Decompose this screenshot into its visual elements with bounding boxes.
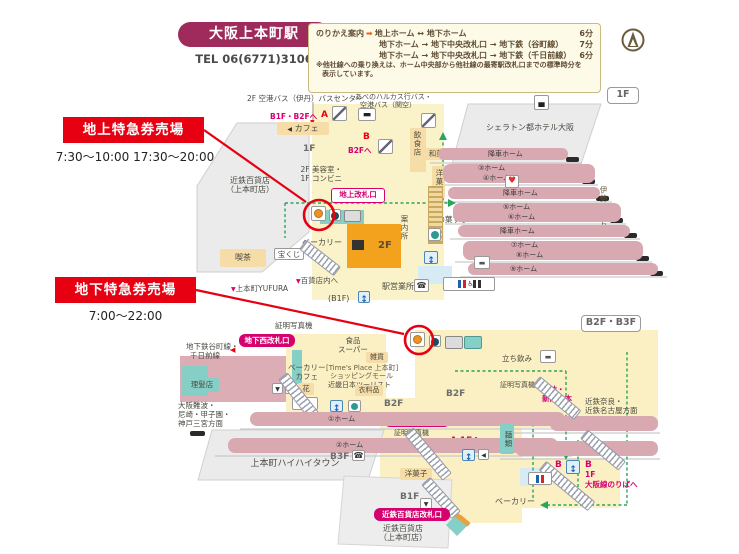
restaurant-label: 飲食店 [412, 131, 423, 157]
express-ticket-office-icon [311, 206, 326, 221]
transfer-route-1: 地上ホーム ↔ 地下ホーム [375, 28, 573, 39]
elevator-icon [330, 400, 343, 412]
elevator-icon [358, 291, 370, 303]
transfer-info-box: のりかえ案内 ➡ 地上ホーム ↔ 地下ホーム 6分 地下ホーム → 地下中央改札… [308, 23, 601, 93]
b1f-text: B1F [400, 492, 419, 502]
transfer-note-line1: ※他社線への乗り換えは、ホーム中央部から他社線の最寄駅改札口までの標準時分を [316, 61, 593, 70]
platform-3-4-bar: ③ホーム ④ホーム [443, 164, 595, 183]
dept-store-label: 近鉄百貨店 （上本町店） [210, 176, 290, 195]
express-ticket-office-icon [410, 332, 425, 347]
harukas-bus-label-1: あべのハルカス行バス・ [355, 93, 432, 101]
bakery-cafe-label: ベーカリー カフェ [288, 364, 326, 382]
underground-west-gate-label: 地下西改札口 [239, 334, 295, 347]
zakka-shop-label: 雑貨 [366, 352, 388, 363]
clothing-shop-label: 衣料品 [355, 385, 383, 396]
ground-express-ticket-hours: 7:30～10:00 17:30～20:00 [40, 148, 230, 165]
ground-express-ticket-label: 地上特急券売場 [63, 117, 204, 143]
bus-icon [358, 108, 376, 121]
ticket-machine-icon [429, 335, 441, 347]
nara-platform-bar-1 [550, 416, 658, 431]
elevator-icon [424, 251, 438, 264]
photo-booth-label-3: 証明写真機 [500, 381, 535, 389]
platform-7-8-bar: ⑦ホーム ⑧ホーム [463, 241, 643, 260]
ticket-counter-icon [344, 210, 361, 222]
dept-store-label-b1f: 近鉄百貨店 （上本町店） [368, 524, 438, 543]
smoking-area-icon [474, 256, 490, 269]
b2f-text-right: B2F [446, 389, 465, 399]
transfer-time-1: 6分 [573, 28, 593, 39]
restroom-icons [528, 472, 552, 485]
exit-b-label-2: B [585, 460, 592, 470]
to-b2f-label: B2Fへ [348, 145, 372, 156]
floor-1f-text: 1F [303, 144, 315, 154]
platform-5-6-bar: ⑤ホーム ⑥ホーム [453, 203, 621, 222]
alight-platform-bar-3: 降車ホーム [458, 225, 630, 237]
to-b1f-b2f-label: B1F・B2Fへ [270, 111, 317, 122]
info-office-label: 案内所 [399, 215, 410, 241]
to-dept-store-label: ▼百貨店内へ [296, 277, 338, 286]
transfer-time-2: 7分 [573, 39, 593, 50]
floor-badge-1f: 1F [607, 87, 639, 104]
arrow-icon: ➡ [364, 28, 375, 39]
escalator-icon [421, 113, 436, 128]
underground-express-ticket-hours: 7:00～22:00 [55, 307, 196, 324]
exit-b-label: B [363, 132, 370, 142]
bus-center-label: 2F 空港バス（伊丹）バスセンター [247, 95, 363, 104]
exit-a-label: A [321, 110, 328, 120]
transfer-route-2: 地下ホーム → 地下中央改札口 → 地下鉄（谷町線） [379, 39, 573, 50]
sheraton-hotel-label: シェラトン都ホテル大阪 [486, 123, 574, 132]
phone-icon [414, 279, 429, 292]
nara-direction-2: 近鉄名古屋方面 [585, 407, 638, 416]
restroom-icons: ♿ [443, 277, 495, 291]
phone-booth-icon [478, 449, 489, 460]
ground-ticket-gate-label: 地上改札口 [331, 188, 385, 203]
bakery-label-b2f: ベーカリー [495, 497, 535, 506]
beauty-conv-label: 2F 美容室・ 1F コンビニ [300, 166, 342, 184]
platform-9-bar: ⑨ホーム [468, 263, 658, 275]
charge-machine-icon [464, 336, 482, 349]
transfer-note-line2: 表示しています。 [316, 70, 593, 79]
namba-direction-3: 神戸三宮方面 [178, 420, 223, 429]
alight-platform-bar-2: 降車ホーム [448, 187, 600, 199]
ticket-machine-icon [329, 209, 341, 221]
to-osaka-line-label-2: 大阪線のりばへ [585, 479, 638, 490]
station-map-page: 大阪上本町駅 TEL 06(6771)3106 のりかえ案内 ➡ 地上ホーム ↔… [0, 0, 739, 554]
b1f-note-label: (B1F) [328, 294, 349, 303]
aed-icon [505, 175, 519, 188]
transfer-time-3: 6分 [573, 50, 593, 61]
station-office-label: 駅営業所 [382, 282, 414, 291]
kissa-label: 喫茶 [220, 249, 266, 267]
2f-block-label: 2F [378, 240, 392, 251]
to-osaka-line-label-1: 1F [585, 470, 595, 479]
alight-platform-bar-1: 降車ホーム [438, 148, 568, 160]
recycle-icon [348, 400, 361, 412]
dept-store-gate-label: 近鉄百貨店改札口 [374, 508, 450, 521]
smoking-area-icon [540, 350, 556, 363]
transfer-route-3: 地下ホーム → 地下中央改札口 → 地下鉄（千日前線） [379, 50, 573, 61]
platform-1-bar: ①ホーム [250, 412, 565, 426]
ticket-counter-icon [445, 336, 463, 349]
yufura-label: ▼上本町YUFURA [231, 285, 288, 294]
b2f-text-left: B2F [384, 399, 403, 409]
food-market-label: 食品 スーパー [338, 337, 368, 355]
floor-badge-b2f-b3f: B2F・B3F [581, 315, 641, 332]
elevator-icon [566, 460, 580, 474]
escalator-icon [332, 106, 347, 121]
transfer-title: のりかえ案内 [316, 28, 364, 39]
cafe-label: ◀ カフェ [277, 122, 329, 135]
times-place-label-2: ショッピングモール [330, 372, 393, 380]
standing-bar-label: 立ち飲み [502, 355, 532, 364]
haihai-town-label: 上本町ハイハイタウン [230, 456, 360, 469]
recycle-icon [428, 228, 441, 241]
barber-label: 理髪店 [185, 378, 219, 392]
subway-line-label-2: 千日前線 [190, 352, 220, 361]
escalator-icon [378, 139, 393, 154]
underground-express-ticket-label: 地下特急券売場 [55, 277, 196, 303]
taxi-icon [534, 95, 549, 110]
photo-booth-label-1: 証明写真機 [275, 322, 313, 331]
noodle-shop-label: 麺類 [500, 424, 514, 454]
exit-b-label-1: B [555, 460, 562, 470]
elevator-icon [462, 449, 475, 461]
subway-direction-arrow-icon: ◀ [230, 346, 235, 354]
times-place-label-1: [Time's Place 上本町] [326, 364, 398, 372]
